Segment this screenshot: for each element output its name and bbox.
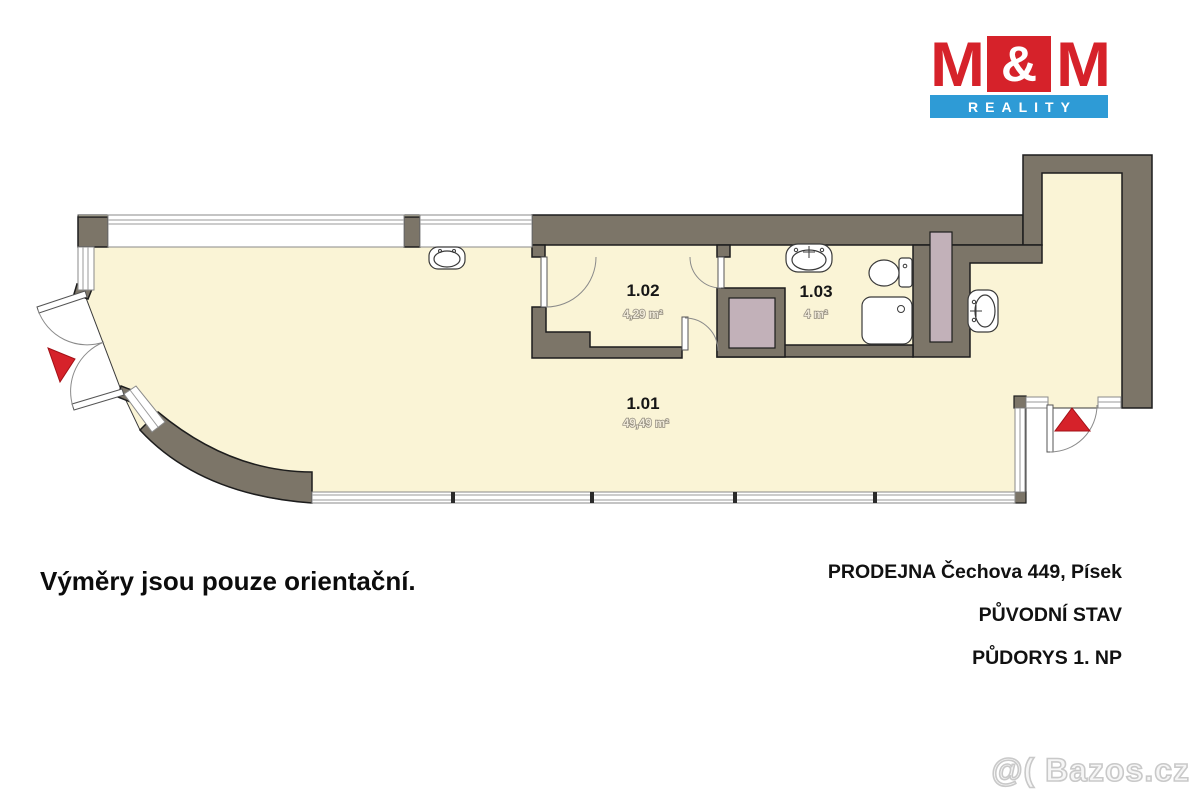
room-number: 1.03 xyxy=(799,282,832,301)
toilet-bowl xyxy=(869,260,899,286)
room-area: 4 m² xyxy=(804,309,828,321)
door-leaf xyxy=(541,257,547,307)
disclaimer-text: Výměry jsou pouze orientační. xyxy=(40,566,416,597)
shaft-right xyxy=(930,232,952,342)
door-leaf xyxy=(37,291,87,313)
window-left-vertical xyxy=(78,247,94,290)
door-leaf xyxy=(718,257,724,288)
room-number: 1.01 xyxy=(626,394,659,413)
room-area: 49,49 m² xyxy=(623,418,669,430)
room-area: 4,29 m² xyxy=(623,309,663,321)
plan-title-line3: PŮDORYS 1. NP xyxy=(828,637,1122,680)
shower-tray xyxy=(862,297,912,344)
plan-title-block: PRODEJNA Čechova 449, Písek PŮVODNÍ STAV… xyxy=(828,551,1122,680)
wall-pier-top xyxy=(404,217,420,247)
shaft-closet xyxy=(729,298,775,348)
window-mullion xyxy=(590,492,594,503)
entrance-arrow-icon xyxy=(48,348,75,382)
wall-stub-103-left xyxy=(717,245,730,257)
plan-title-line1: PRODEJNA Čechova 449, Písek xyxy=(828,551,1122,594)
wall-pillar-topleft xyxy=(78,217,108,247)
toilet-tank xyxy=(899,258,912,287)
bazos-watermark: @( Bazos.cz xyxy=(991,752,1190,789)
entrance-arrow-icon xyxy=(1055,408,1090,431)
logo-ampersand: & xyxy=(1001,36,1037,92)
window-mullion xyxy=(733,492,737,503)
window-bottom-band xyxy=(312,492,1015,503)
wall-stub-102-left xyxy=(532,245,545,257)
page: M & M REALITY xyxy=(0,0,1200,800)
wall-pier-br-bottom xyxy=(1014,492,1026,503)
window-mullion xyxy=(451,492,455,503)
plan-title-line2: PŮVODNÍ STAV xyxy=(828,594,1122,637)
wall-pier-br-top xyxy=(1014,396,1026,408)
floor-plan: 1.01 49,49 m² 1.02 4,29 m² 1.03 4 m² xyxy=(0,0,1200,800)
logo-ampersand-box: & xyxy=(987,36,1051,92)
window-mullion xyxy=(873,492,877,503)
door-leaf xyxy=(682,317,688,350)
door-leaf xyxy=(1047,405,1053,452)
room-number: 1.02 xyxy=(626,281,659,300)
door-leaf xyxy=(72,389,124,410)
sink-basin xyxy=(434,251,460,267)
